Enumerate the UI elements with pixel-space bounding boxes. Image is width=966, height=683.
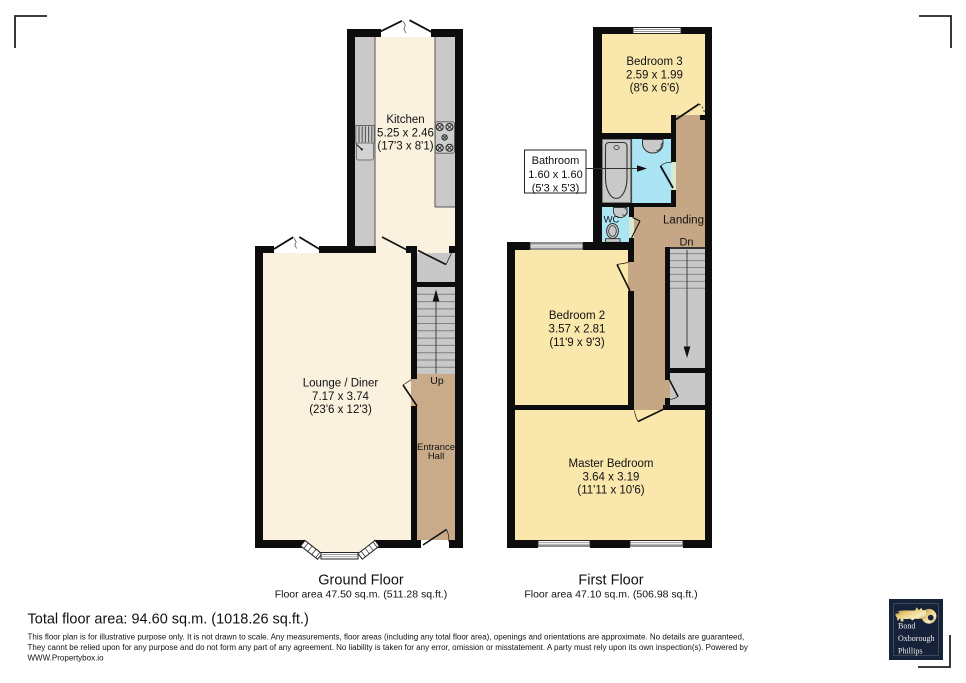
svg-text:Landing: Landing [663,215,704,227]
svg-text:Master Bedroom: Master Bedroom [568,458,653,470]
svg-text:(23'6 x 12'3): (23'6 x 12'3) [309,404,372,416]
svg-text:(11'9 x 9'3): (11'9 x 9'3) [549,337,604,349]
svg-text:Bedroom 3: Bedroom 3 [626,56,682,68]
svg-text:Bedroom 2: Bedroom 2 [549,310,605,322]
svg-text:Up: Up [430,375,444,387]
svg-text:(5'3 x 5'3): (5'3 x 5'3) [532,183,580,195]
svg-text:Bathroom: Bathroom [532,155,580,167]
svg-text:2.59 x 1.99: 2.59 x 1.99 [626,69,683,81]
svg-text:5.25 x 2.46: 5.25 x 2.46 [377,127,434,139]
svg-text:(8'6 x 6'6): (8'6 x 6'6) [630,83,680,95]
svg-text:Total floor area: 94.60 sq.m.: Total floor area: 94.60 sq.m. (1018.26 s… [28,612,309,628]
svg-text:This floor plan is for illustr: This floor plan is for illustrative purp… [28,633,745,642]
svg-text:Phillips: Phillips [898,647,922,656]
svg-text:Hall: Hall [428,451,444,462]
svg-text:Lounge / Diner: Lounge / Diner [303,378,379,390]
svg-text:3.64 x 3.19: 3.64 x 3.19 [583,471,640,483]
svg-text:(17'3 x 8'1): (17'3 x 8'1) [377,141,433,153]
svg-text:1.60 x 1.60: 1.60 x 1.60 [528,169,582,181]
svg-text:Bond: Bond [898,622,915,631]
svg-text:Floor area 47.10 sq.m. (506.98: Floor area 47.10 sq.m. (506.98 sq.ft.) [524,589,697,601]
svg-text:First Floor: First Floor [578,573,643,589]
svg-text:WWW.Propertybox.io: WWW.Propertybox.io [28,654,105,663]
svg-text:They cannt be relied upon for: They cannt be relied upon for any purpos… [28,643,748,652]
svg-text:(11'11 x 10'6): (11'11 x 10'6) [577,485,644,497]
svg-text:Oxborough: Oxborough [898,634,934,643]
svg-text:Ground Floor: Ground Floor [318,573,404,589]
svg-text:Kitchen: Kitchen [386,114,424,126]
svg-text:Floor area 47.50 sq.m. (511.28: Floor area 47.50 sq.m. (511.28 sq.ft.) [275,589,448,601]
svg-text:3.57 x 2.81: 3.57 x 2.81 [549,324,606,336]
svg-text:Dn: Dn [679,236,693,248]
svg-text:7.17 x 3.74: 7.17 x 3.74 [312,391,370,403]
svg-text:WC: WC [604,215,620,226]
